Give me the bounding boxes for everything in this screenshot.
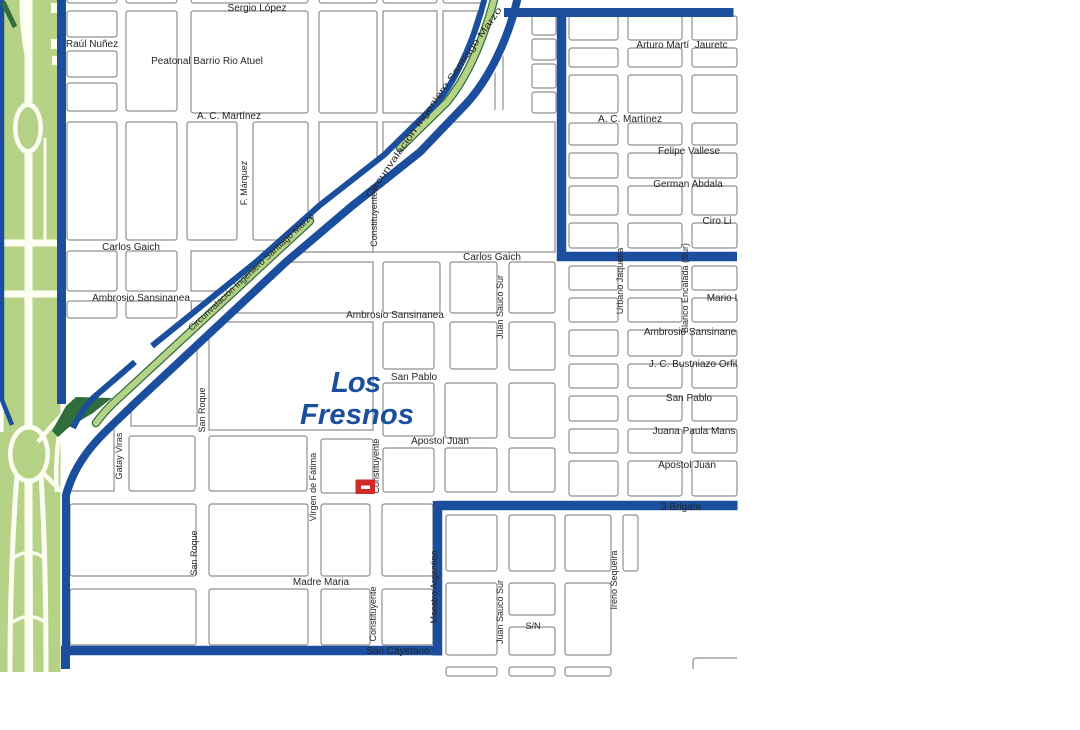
svg-text:Gatay Viras: Gatay Viras	[114, 432, 124, 479]
svg-text:Ireno Sequeira: Ireno Sequeira	[609, 550, 619, 609]
svg-text:Felipe Vallese: Felipe Vallese	[658, 146, 721, 157]
svg-text:Virgen de Fátima: Virgen de Fátima	[308, 453, 318, 521]
svg-text:F. Márquez: F. Márquez	[239, 160, 249, 205]
svg-text:Juan Saucó Sur: Juan Saucó Sur	[495, 275, 505, 339]
svg-text:Ciro Li: Ciro Li	[703, 216, 732, 227]
svg-text:Juana Paula Mans: Juana Paula Mans	[653, 426, 736, 437]
svg-text:Carlos Gaich: Carlos Gaich	[463, 252, 521, 263]
svg-text:Fresnos: Fresnos	[300, 399, 414, 431]
svg-text:Urbano Jaqueira: Urbano Jaqueira	[615, 248, 625, 315]
svg-text:Arturo Martí Jauretc: Arturo Martí Jauretc	[636, 40, 727, 51]
svg-text:Peatonal Barrio Rio Atuel: Peatonal Barrio Rio Atuel	[151, 56, 263, 67]
svg-text:Raúl Nuñez: Raúl Nuñez	[66, 39, 118, 50]
svg-text:Maestro Argentino: Maestro Argentino	[429, 550, 439, 623]
svg-text:J. C. Bustniazo Orfil: J. C. Bustniazo Orfil	[649, 359, 737, 370]
svg-text:Sergio López: Sergio López	[228, 3, 287, 14]
svg-text:Blanco Encalada (Sur): Blanco Encalada (Sur)	[680, 243, 690, 333]
svg-text:A. C. Martínez: A. C. Martínez	[598, 114, 662, 125]
svg-text:Mario I: Mario I	[707, 293, 738, 304]
svg-text:Apostol Juan: Apostol Juan	[658, 460, 716, 471]
svg-text:Ambrosio Sansinanea: Ambrosio Sansinanea	[92, 293, 190, 304]
svg-text:Constituyente: Constituyente	[368, 586, 378, 641]
svg-text:Madre Maria: Madre Maria	[293, 577, 350, 588]
svg-text:San Pablo: San Pablo	[666, 393, 713, 404]
svg-text:German Abdala: German Abdala	[653, 179, 723, 190]
svg-text:San Roque: San Roque	[197, 387, 207, 432]
svg-text:San Roque: San Roque	[189, 530, 199, 575]
svg-text:San Cayetano: San Cayetano	[366, 646, 430, 657]
svg-text:S/N: S/N	[525, 621, 540, 631]
svg-text:A. C. Martínez: A. C. Martínez	[197, 111, 261, 122]
svg-text:Carlos Gaich: Carlos Gaich	[102, 242, 160, 253]
svg-text:San Pablo: San Pablo	[391, 372, 438, 383]
svg-text:3 Brigata: 3 Brigata	[661, 502, 701, 513]
svg-text:Los: Los	[331, 367, 381, 399]
svg-text:Juan Saucó Sur: Juan Saucó Sur	[495, 580, 505, 644]
svg-text:Ambrosio Sansinane: Ambrosio Sansinane	[644, 327, 737, 338]
svg-text:Ambrosio Sansinanea: Ambrosio Sansinanea	[346, 310, 444, 321]
svg-text:Apostol Juan: Apostol Juan	[411, 436, 469, 447]
